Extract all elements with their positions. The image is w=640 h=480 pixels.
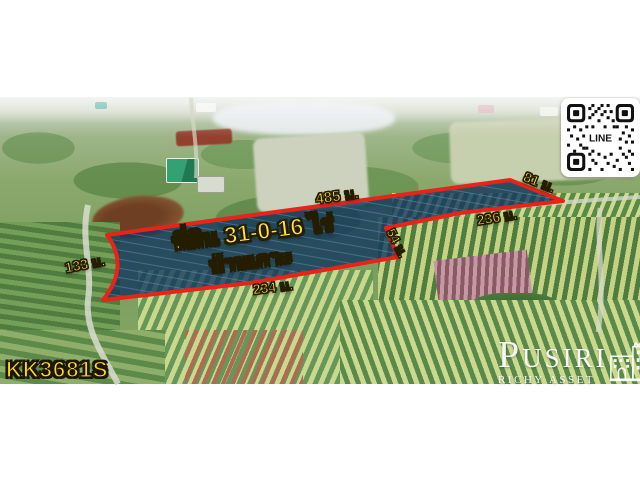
agency-logo: PUSIRI RICHY ASSET bbox=[498, 338, 640, 386]
teal-warehouse bbox=[166, 158, 199, 183]
listing-code: KK3681S bbox=[6, 357, 108, 383]
agency-name: PUSIRI bbox=[498, 336, 608, 374]
top-haze bbox=[0, 97, 640, 137]
screenshot-root: 485 ม. 81 ม. 236 ม. 54 ม. 234 ม. 133 ม. … bbox=[0, 0, 640, 480]
building-icon bbox=[608, 338, 640, 386]
qr-pattern: LINE bbox=[567, 104, 634, 171]
agency-subtitle: RICHY ASSET bbox=[498, 375, 608, 386]
qr-line-label: LINE bbox=[589, 134, 612, 145]
line-qr-code: LINE bbox=[561, 98, 640, 177]
white-shed bbox=[197, 176, 225, 193]
red-crop-rows bbox=[185, 330, 303, 384]
